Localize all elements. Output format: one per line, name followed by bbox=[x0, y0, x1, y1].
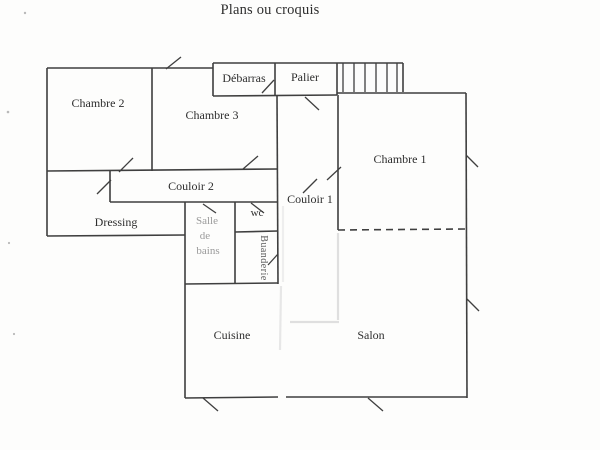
room-label-cuisine: Cuisine bbox=[214, 328, 251, 342]
room-salon bbox=[335, 230, 467, 398]
room-label-chambre-1: Chambre 1 bbox=[374, 152, 427, 166]
room-label-palier: Palier bbox=[291, 70, 319, 84]
scan-specks bbox=[7, 12, 27, 335]
room-label-couloir-2: Couloir 2 bbox=[168, 179, 214, 193]
room-label-chambre-3: Chambre 3 bbox=[186, 108, 239, 122]
room-chambre-2 bbox=[47, 68, 152, 171]
room-label-couloir-1: Couloir 1 bbox=[287, 192, 333, 206]
scanned-floor-plan-page: Plans ou croquis bbox=[0, 0, 600, 450]
room-label-salle-de-bains-line2: de bbox=[200, 230, 211, 242]
room-cuisine bbox=[185, 284, 335, 398]
room-label-buanderie: Buanderie bbox=[258, 235, 269, 281]
room-regions bbox=[47, 63, 467, 398]
room-label-salle-de-bains-line1: Salle bbox=[196, 215, 218, 227]
room-label-debarras: Débarras bbox=[222, 71, 266, 85]
room-buanderie bbox=[235, 232, 278, 284]
room-label-salon: Salon bbox=[357, 328, 384, 342]
room-label-dressing: Dressing bbox=[95, 215, 138, 229]
room-label-salle-de-bains-line3: bains bbox=[196, 245, 219, 257]
staircase bbox=[343, 63, 397, 92]
room-label-wc: wc bbox=[251, 207, 264, 219]
floor-plan-drawing: Chambre 2 Chambre 3 Débarras Palier Cham… bbox=[0, 0, 600, 450]
room-label-chambre-2: Chambre 2 bbox=[72, 96, 125, 110]
room-couloir-1 bbox=[278, 96, 338, 230]
